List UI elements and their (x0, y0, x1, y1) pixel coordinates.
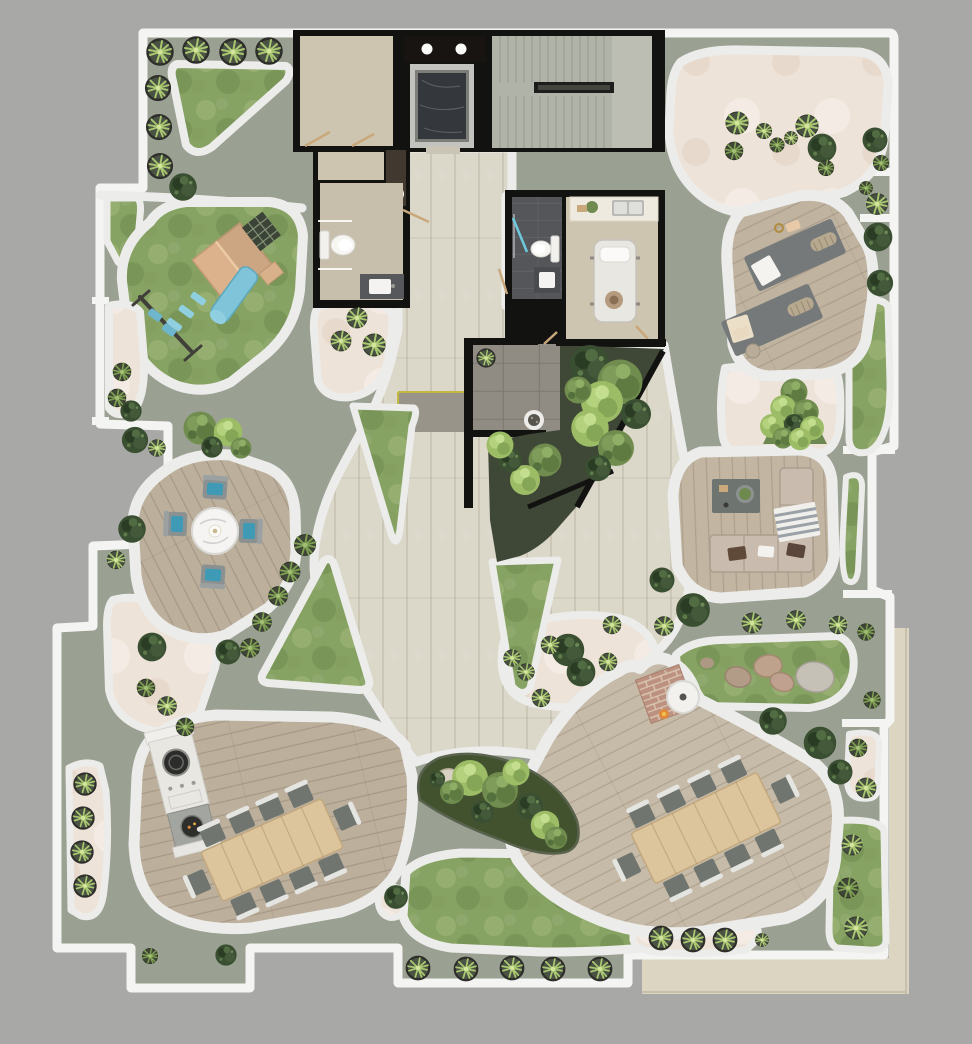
pillow-white (758, 545, 775, 557)
plant-pota (146, 76, 170, 100)
plant-agave (856, 778, 876, 798)
zen-sand-garden (669, 50, 888, 214)
plant-bush (650, 568, 675, 593)
plant-agave (842, 835, 862, 855)
plant-agave (742, 613, 762, 633)
plant-agaved (864, 692, 881, 709)
plant-bush (828, 760, 853, 785)
plant-agave (845, 917, 867, 939)
plant-agave (504, 650, 521, 667)
dining-chair (199, 564, 227, 589)
plant-agave (784, 131, 797, 144)
plant-bush (621, 399, 651, 429)
plant-pota (455, 958, 478, 981)
plant-pota (74, 773, 95, 794)
boulder-small (700, 658, 714, 669)
plant-agave (518, 664, 535, 681)
adjacent-roof-bottom (642, 958, 909, 994)
plant-bush (169, 173, 197, 201)
plant-bush (118, 515, 146, 543)
plant-bush (201, 436, 222, 457)
book (719, 485, 728, 492)
plant-agaved (142, 948, 157, 963)
pillow-dark (727, 546, 747, 561)
tray (577, 205, 587, 212)
plant-pota (148, 154, 172, 178)
plant-treel (487, 432, 514, 459)
dining-chair (163, 511, 187, 538)
plant-bush (216, 640, 241, 665)
plant-agaved (137, 679, 155, 697)
parapet-stub (92, 417, 109, 425)
plant-pota (650, 927, 673, 950)
elevator-machine-panel (404, 36, 486, 62)
storage-room (300, 36, 393, 146)
treatment-room (566, 197, 658, 339)
plant-pota (74, 875, 95, 896)
elevator-threshold (426, 146, 460, 154)
lawn-strip-east-2 (842, 475, 862, 582)
floor-plan-rendering (0, 0, 972, 1044)
parapet-stub (860, 214, 894, 222)
plant-agaved (725, 142, 743, 160)
parapet-stub (843, 590, 892, 598)
plant-agaved (873, 155, 888, 170)
plant-agaved (849, 739, 867, 757)
plant-pota (407, 957, 430, 980)
stair-rail-inner (538, 85, 610, 90)
plant-agave (829, 616, 847, 634)
plant-pota (714, 929, 737, 952)
plant-pota (72, 807, 93, 828)
plant-bush (120, 400, 141, 421)
plant-bush (215, 944, 236, 965)
vestibule (318, 152, 384, 180)
plant-pota (682, 929, 705, 952)
plant-agaved (818, 160, 833, 175)
plant-agaved (295, 535, 316, 556)
plant-agave (655, 617, 674, 636)
plant-agaved (770, 138, 784, 152)
plant-treeo (545, 827, 568, 850)
plant-bush (863, 128, 888, 153)
plant-pota (184, 38, 209, 63)
plant-agave (796, 115, 818, 137)
plant-treel (503, 759, 530, 786)
plant-bush (429, 771, 445, 787)
dining-chair (201, 475, 229, 500)
court-wall-north (464, 338, 538, 345)
plant-agave (541, 636, 559, 654)
plant-agaved (280, 562, 300, 582)
plant-agaved (113, 363, 131, 381)
plant-bush (384, 885, 408, 909)
plant-agaved (838, 878, 858, 898)
floor-plan-stage (0, 0, 972, 1044)
plant-bush (804, 727, 837, 760)
plant-bush (122, 427, 148, 453)
faucet (391, 284, 395, 288)
parapet-stub (842, 719, 890, 727)
plant-pota (477, 349, 495, 367)
plant-agave (158, 697, 177, 716)
plant-treeo (565, 377, 592, 404)
plant-agave (603, 616, 621, 634)
plant-agave (787, 611, 806, 630)
plant-agave (347, 308, 367, 328)
plant-agave (149, 440, 166, 457)
east-wing (499, 190, 665, 347)
plant-pota (71, 841, 92, 862)
plant-pota (589, 958, 612, 981)
plant-agave (755, 933, 768, 946)
plant-pota (148, 40, 173, 65)
plant-bush (759, 707, 787, 735)
plant-agaved (253, 613, 272, 632)
plant-agave (532, 689, 550, 707)
plant-bush (808, 134, 837, 163)
plant-pota (501, 957, 524, 980)
plant-agaved (176, 718, 194, 736)
sink (539, 272, 555, 288)
plant-agave (363, 334, 385, 356)
plant-pota (221, 40, 246, 65)
plant-agave (599, 653, 617, 671)
machine-light (456, 44, 467, 55)
plant-pota (147, 115, 171, 139)
plant-bush (585, 455, 611, 481)
table-plant (739, 488, 751, 500)
plant-pota (257, 39, 282, 64)
plant-agaved (241, 639, 260, 658)
plant-agave (726, 112, 748, 134)
counter-plant (586, 201, 598, 213)
sink (369, 279, 391, 294)
elevator (404, 36, 486, 154)
striped-blanket (773, 502, 820, 543)
plant-bush (864, 223, 893, 252)
plant-bush (867, 270, 893, 296)
plant-agave (756, 123, 771, 138)
machine-light (422, 44, 433, 55)
plant-agaved (859, 181, 872, 194)
plant-agaved (269, 587, 288, 606)
plant-pota (542, 958, 565, 981)
plant-bush (471, 801, 494, 824)
plant-agaved (858, 624, 875, 641)
plant-treeo (231, 438, 252, 459)
staircase (492, 36, 652, 148)
plant-treel (789, 428, 812, 451)
plant-agave (331, 331, 351, 351)
kitchenette (570, 197, 658, 221)
massage-table (590, 240, 640, 322)
plant-bush (676, 593, 710, 627)
plant-agave (867, 194, 888, 215)
basket (746, 344, 760, 358)
dining-chair (239, 518, 263, 545)
plant-bush (138, 633, 167, 662)
deco (724, 503, 729, 508)
stair-landing (612, 36, 652, 148)
plant-agave (107, 551, 125, 569)
elevator-cab-floor (418, 73, 466, 139)
court-wall-west (464, 338, 473, 508)
plant-bush (567, 658, 596, 687)
garden-wall-north (556, 339, 666, 346)
